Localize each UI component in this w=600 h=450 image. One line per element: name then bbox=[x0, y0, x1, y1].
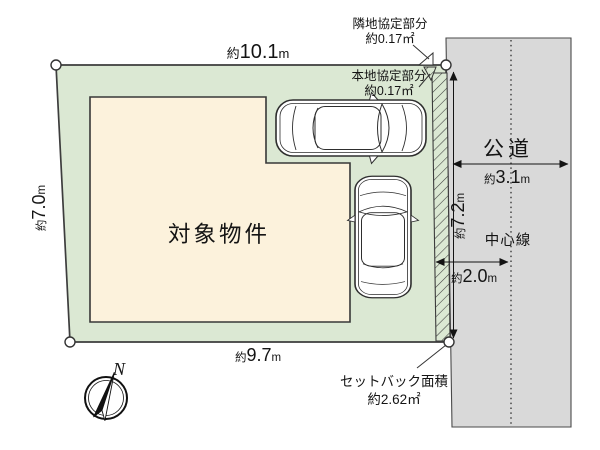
center-line-label: 中心線 bbox=[485, 232, 532, 249]
neighbor-agreement-triangle bbox=[419, 53, 433, 65]
compass-north-label: N bbox=[112, 359, 126, 379]
neighbor-agreement-area: 約0.17㎡ bbox=[365, 31, 415, 46]
dimension-top-label: 約10.1m bbox=[227, 41, 290, 63]
site-plan-canvas: 対象物件 約10.1m 約7.0m 約9.7m 公道 約3.1m 約7.2m 中… bbox=[0, 0, 600, 450]
subject-agreement-title: 本地協定部分 bbox=[351, 68, 426, 83]
compass-north-icon: N bbox=[85, 359, 127, 421]
setback-leader-line bbox=[417, 345, 446, 368]
setback-area-title: セットバック面積 bbox=[340, 374, 448, 389]
boundary-marker bbox=[444, 337, 454, 347]
neighbor-leader-line bbox=[413, 45, 429, 59]
site-plan-diagram: 対象物件 約10.1m 約7.0m 約9.7m 公道 約3.1m 約7.2m 中… bbox=[0, 0, 600, 450]
car-top-view-icon bbox=[348, 176, 419, 298]
road-name-label: 公道 bbox=[483, 138, 533, 161]
neighbor-agreement-title: 隣地協定部分 bbox=[352, 16, 427, 31]
dimension-left-label: 約7.0m bbox=[29, 185, 49, 231]
boundary-marker bbox=[441, 60, 451, 70]
car-top-view-icon bbox=[276, 93, 426, 164]
boundary-marker bbox=[51, 60, 61, 70]
setback-area-value: 約2.62㎡ bbox=[367, 392, 421, 407]
subject-agreement-area: 約0.17㎡ bbox=[364, 83, 414, 98]
dimension-bottom-label: 約9.7m bbox=[235, 345, 281, 365]
building-label: 対象物件 bbox=[168, 222, 270, 247]
boundary-marker bbox=[65, 337, 75, 347]
